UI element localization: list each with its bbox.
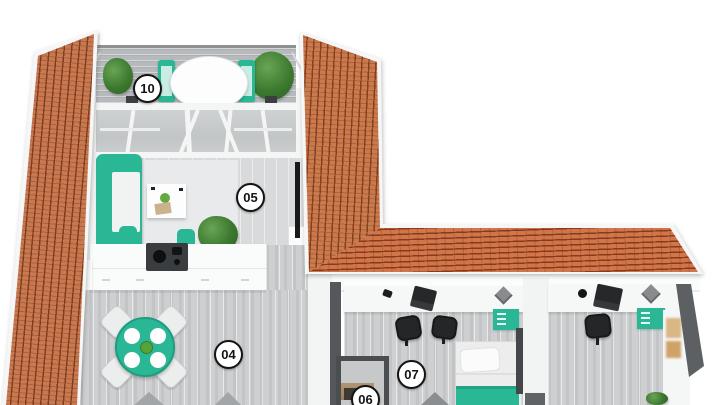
room-marker-04[interactable]: 04 (214, 340, 243, 369)
desk-right-webcam (578, 289, 587, 298)
shelf-right-line-1 (641, 312, 650, 314)
wall-tv (295, 162, 300, 238)
office-chair-2-stem (442, 338, 445, 344)
shelf-right-line-3 (641, 322, 650, 324)
dining-table (115, 317, 175, 377)
plate-4 (150, 352, 166, 368)
coffee-table-speck-2 (179, 188, 183, 191)
terrace-round-table (170, 56, 248, 110)
bedroom-right-plant (646, 392, 668, 405)
wall-art-1 (666, 318, 681, 338)
cooktop-burner-square (172, 247, 182, 255)
skylight-rail-right (234, 128, 292, 131)
coffee-table (147, 184, 186, 218)
room-marker-07[interactable]: 07 (397, 360, 426, 389)
bedroom-divider-wall (523, 278, 549, 405)
kitchen-handle-4 (241, 279, 249, 281)
bed-duvet-fold (456, 373, 519, 375)
terrace-plant-left (103, 58, 133, 94)
shelf-07-line-1 (497, 313, 506, 315)
office-chair-1 (394, 314, 423, 342)
plate-1 (124, 328, 140, 344)
pendant-lamp-1 (133, 392, 165, 405)
office-chair-3-stem (596, 337, 599, 345)
kitchen-handle-1 (102, 279, 110, 281)
wall-art-2 (666, 341, 681, 358)
room-marker-10[interactable]: 10 (133, 74, 162, 103)
shelf-07-line-2 (497, 318, 506, 320)
bedroom-07-lamp (420, 392, 450, 405)
bed (455, 341, 522, 405)
cooktop-burner-large (153, 250, 166, 263)
skylight-rail-left (100, 128, 160, 131)
kitchen-shadow (90, 290, 266, 293)
office-chair-3 (584, 313, 612, 340)
room-marker-05[interactable]: 05 (236, 183, 265, 212)
office-chair-1-stem (405, 339, 408, 346)
wall-shelf-right (637, 308, 665, 329)
divider-door-gap (525, 393, 545, 405)
cooktop (146, 243, 188, 271)
plate-3 (124, 352, 140, 368)
pendant-lamp-2 (214, 392, 242, 405)
coffee-table-books (154, 202, 171, 215)
terrace-railing (96, 45, 296, 48)
wall-shelf-07 (493, 309, 519, 330)
coffee-table-speck-1 (151, 187, 155, 190)
kitchen-handle-3 (201, 279, 209, 281)
kitchen-counter-left (82, 260, 92, 292)
floor-plan-canvas: 10 05 04 07 06 (0, 0, 720, 405)
bed-pillow (459, 347, 501, 374)
table-centerpiece (140, 341, 153, 354)
floor-right-of-kitchen (266, 245, 308, 290)
shelf-07-line-3 (497, 323, 506, 325)
corridor-wall (308, 272, 332, 405)
sofa-cushions (112, 172, 140, 232)
kitchen-handle-2 (136, 279, 144, 281)
shelf-right-line-2 (641, 317, 650, 319)
office-chair-2 (431, 314, 459, 340)
bed-blanket-teal (456, 386, 519, 405)
plate-2 (150, 328, 166, 344)
cooktop-burner-small (174, 259, 180, 265)
